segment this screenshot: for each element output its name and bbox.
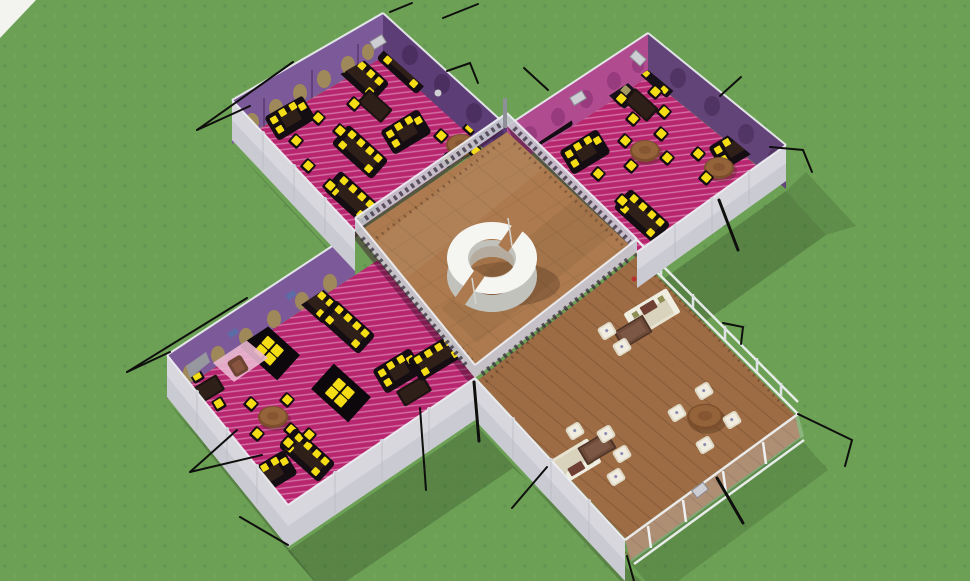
red-marker (632, 277, 637, 282)
corner-post (503, 98, 507, 128)
model-viewport[interactable] (0, 0, 970, 581)
wall-sphere-object (435, 90, 442, 97)
